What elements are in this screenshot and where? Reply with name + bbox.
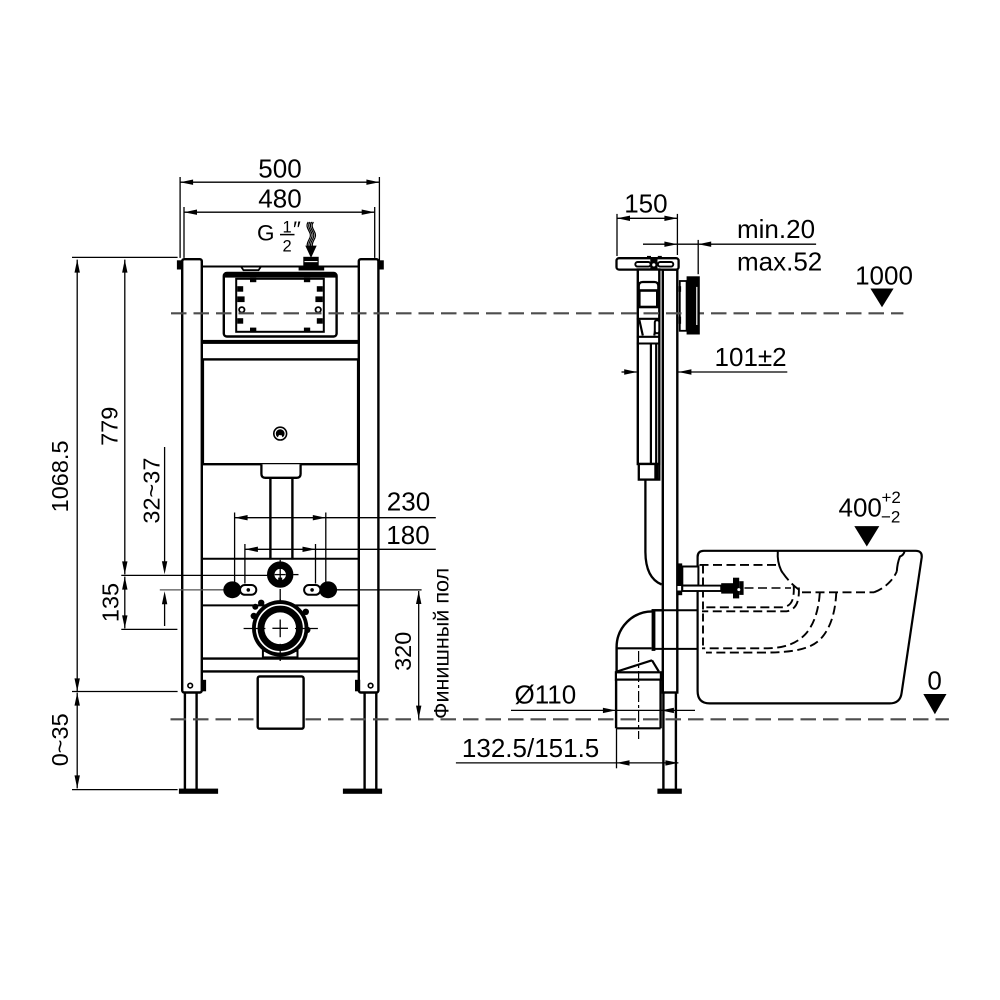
svg-text:32~37: 32~37: [138, 458, 164, 524]
svg-text:132.5/151.5: 132.5/151.5: [462, 733, 599, 763]
svg-text:180: 180: [386, 520, 429, 550]
svg-text:1000: 1000: [855, 261, 913, 291]
svg-text:+2: +2: [882, 488, 901, 507]
svg-text:400: 400: [839, 493, 882, 523]
svg-text:779: 779: [97, 407, 123, 446]
svg-text:135: 135: [98, 583, 124, 622]
svg-text:0~35: 0~35: [47, 713, 73, 766]
svg-text:2: 2: [283, 238, 292, 256]
svg-text:500: 500: [258, 154, 301, 184]
svg-text:min.20: min.20: [737, 214, 815, 244]
svg-text:Финишный пол: Финишный пол: [429, 568, 454, 719]
svg-text:G: G: [257, 221, 275, 246]
svg-text:0: 0: [927, 666, 941, 696]
svg-text:150: 150: [624, 189, 667, 219]
svg-text:480: 480: [258, 183, 301, 213]
svg-text:101±2: 101±2: [715, 342, 787, 372]
svg-text:320: 320: [390, 632, 416, 671]
svg-text:max.52: max.52: [737, 247, 822, 277]
svg-text:1068.5: 1068.5: [47, 440, 73, 512]
svg-text:1: 1: [283, 219, 292, 237]
svg-text:″: ″: [293, 217, 301, 242]
svg-text:230: 230: [387, 487, 430, 517]
svg-text:−2: −2: [881, 508, 900, 527]
svg-text:Ø110: Ø110: [515, 680, 577, 710]
